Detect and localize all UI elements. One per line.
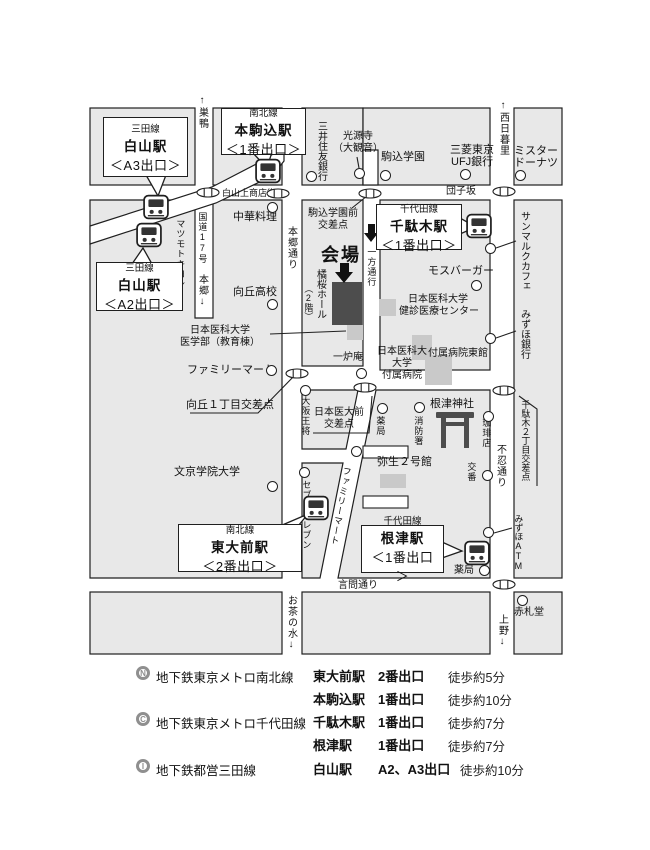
poi-fuzoku-3: 付属病院	[374, 370, 430, 382]
poi-ufj-2: UFJ銀行	[451, 156, 493, 169]
poi-marker	[471, 280, 482, 291]
train-icon-hakusan-a2	[136, 222, 162, 248]
poi-marker	[300, 385, 311, 396]
legend-line-namboku: 地下鉄東京メトロ南北線	[156, 667, 294, 686]
legend-walk-time: 徒歩約10分	[460, 760, 524, 779]
poi-marker	[356, 368, 367, 379]
poi-marker	[460, 169, 471, 180]
legend-station: 白山駅	[313, 759, 352, 778]
poi-marker	[483, 527, 494, 538]
poi-marker	[377, 403, 388, 414]
poi-fuzoku-2: 大学	[374, 358, 430, 370]
poi-marker	[380, 170, 391, 181]
legend-exit: A2、A3出口	[378, 759, 450, 778]
poi-marker	[515, 170, 526, 181]
road-label-dangozaka: 団子坂	[446, 186, 476, 198]
crosswalk-icon	[492, 579, 516, 590]
poi-marker	[351, 446, 362, 457]
station-box-nezu: 千代田線 根津駅 ＜1番出口＞	[361, 525, 444, 573]
legend-exit: 1番出口	[378, 712, 424, 731]
crosswalk-icon	[196, 187, 220, 198]
venue-arrow-stem	[340, 263, 349, 272]
poi-kogenji-2: （大観音）	[330, 143, 386, 155]
poi-mitsui-sumitomo: 三井住友銀行	[315, 121, 327, 181]
legend-line-mita: 地下鉄都営三田線	[156, 760, 256, 779]
venue-building	[332, 282, 362, 325]
legend-walk-time: 徒歩約7分	[448, 713, 505, 732]
station-box-hakusan-a2: 三田線 白山駅 ＜A2出口＞	[96, 262, 183, 311]
crossing-sendagi2: 千駄木２丁目交差点	[520, 400, 530, 481]
road-label-hongodori: 本郷通り	[285, 226, 297, 270]
poi-marker	[485, 333, 496, 344]
road-label-ueno: 上野↓	[496, 614, 508, 648]
poi-marker	[485, 243, 496, 254]
legend-line-chiyoda: 地下鉄東京メトロ千代田線	[156, 713, 306, 732]
poi-chuka: 中華料理	[233, 211, 277, 224]
venue-floor-label: （2階）	[303, 284, 313, 321]
poi-coffee: 珈琲店	[481, 418, 491, 448]
station-box-honkomagome: 南北線 本駒込駅 ＜1番出口＞	[221, 108, 306, 155]
legend-station: 東大前駅	[313, 666, 365, 685]
station-box-hakusan-a3: 三田線 白山駅 ＜A3出口＞	[103, 117, 188, 177]
poi-sanmarku: サンマルクカフェ	[518, 211, 530, 291]
crosswalk-icon	[358, 188, 382, 199]
train-icon-hakusan-a3	[143, 194, 169, 220]
poi-shobosho: 消防署	[413, 416, 423, 446]
poi-igakubu-1: 日本医科大学	[168, 325, 272, 337]
metro-line-symbol-chiyoda: C	[136, 712, 150, 726]
crosswalk-icon	[285, 368, 309, 379]
poi-marker	[354, 168, 365, 179]
poi-marker	[479, 565, 490, 576]
poi-marker	[299, 467, 310, 478]
poi-famima-west: ファミリーマート	[187, 364, 275, 377]
legend-exit: 2番出口	[378, 666, 424, 685]
legend-station: 本駒込駅	[313, 689, 365, 708]
poi-mizuho-atm: みずほATM	[513, 514, 523, 571]
crosswalk-icon	[492, 385, 516, 396]
legend-exit: 1番出口	[378, 735, 424, 754]
road-label-shinobazu: 不忍通り	[494, 444, 506, 488]
station-name: 東大前駅	[182, 536, 298, 556]
road-label-sugamo: ↑巣鴨	[196, 95, 208, 129]
poi-mister-donut-1: ミスター	[514, 145, 558, 158]
train-icon-nezu	[464, 540, 490, 566]
education-building	[347, 325, 363, 340]
legend-walk-time: 徒歩約5分	[448, 667, 505, 686]
metro-line-symbol-mita: I	[136, 759, 150, 773]
kogenji-stub-road	[363, 150, 378, 185]
poi-nezu-jinja: 根津神社	[430, 398, 474, 411]
station-exit: ＜A3出口＞	[107, 155, 184, 174]
train-icon-honkomagome	[255, 158, 281, 184]
crossing-idaimae-1: 日本医大前	[306, 407, 372, 419]
poi-marker	[267, 481, 278, 492]
poi-ufj-1: 三菱東京	[450, 144, 494, 157]
crossing-komagomemae-1: 駒込学園前	[300, 208, 366, 220]
road-label-nishinippori: ↑西日暮里	[497, 100, 509, 156]
train-icon-todaimae	[303, 495, 329, 521]
poi-bunkyo-univ: 文京学院大学	[174, 466, 240, 479]
station-line: 南北線	[182, 522, 298, 536]
station-name: 白山駅	[100, 274, 179, 294]
venue-arrow-icon	[335, 272, 353, 283]
poi-fuzoku-1: 日本医科大	[374, 346, 430, 358]
station-line: 三田線	[100, 260, 179, 274]
station-name: 千駄木駅	[380, 215, 458, 235]
crosswalk-icon	[266, 188, 290, 199]
poi-kogenji-1: 光源寺	[336, 131, 380, 143]
station-name: 根津駅	[365, 527, 440, 547]
poi-marker	[517, 595, 528, 606]
station-exit: ＜A2出口＞	[100, 294, 179, 313]
poi-marker	[414, 402, 425, 413]
station-exit: ＜2番出口＞	[182, 556, 298, 575]
poi-marker	[267, 202, 278, 213]
oneway-arrow-stem	[368, 224, 375, 233]
station-box-sendagi: 千代田線 千駄木駅 ＜1番出口＞	[376, 204, 462, 250]
poi-mister-donut-2: ドーナツ	[514, 157, 558, 170]
road-label-ochanomizu: お茶の水↓	[285, 595, 297, 651]
poi-akafudado: 赤札堂	[514, 607, 544, 619]
legend-station: 千駄木駅	[313, 712, 365, 731]
station-exit: ＜1番出口＞	[380, 235, 458, 254]
metro-line-symbol-namboku: N	[136, 666, 150, 680]
poi-yayoi: 弥生２号館	[377, 456, 432, 469]
station-exit: ＜1番出口＞	[365, 547, 440, 585]
poi-marker	[306, 171, 317, 182]
poi-ichiroan: 一炉庵	[333, 352, 363, 364]
poi-toukan: 付属病院東館	[428, 348, 488, 360]
station-line: 南北線	[225, 105, 302, 119]
poi-yakkyoku-north: 薬局	[375, 416, 385, 436]
road-label-kokudo17: 国道17号	[197, 212, 207, 264]
poi-marker	[482, 470, 493, 481]
poi-marker	[267, 299, 278, 310]
station-exit: ＜1番出口＞	[225, 139, 302, 158]
poi-mos-burger: モスバーガー	[428, 265, 494, 278]
crosswalk-icon	[492, 186, 516, 197]
poi-igakubu-2: 医学部（教育棟）	[168, 337, 272, 349]
access-map-page: 白山上商店街 団子坂 言問通り ↑巣鴨 国道17号 本郷↓ ↑西日暮里 本郷通り…	[0, 0, 650, 850]
poi-komagome-gakuen: 駒込学園	[381, 151, 425, 164]
crossing-mukogaoka1: 向丘１丁目交差点	[186, 399, 274, 412]
train-icon-sendagi	[466, 213, 492, 239]
poi-yakkyoku-south: 薬局	[454, 565, 474, 577]
crossing-idaimae-2: 交差点	[306, 419, 372, 431]
legend-walk-time: 徒歩約7分	[448, 736, 505, 755]
legend-walk-time: 徒歩約10分	[448, 690, 512, 709]
road-label-oneway: 一方通行	[366, 247, 376, 287]
legend-exit: 1番出口	[378, 689, 424, 708]
station-box-todaimae: 南北線 東大前駅 ＜2番出口＞	[178, 524, 302, 572]
crosswalk-icon	[353, 382, 377, 393]
crossing-komagomemae-2: 交差点	[300, 220, 366, 232]
station-name: 本駒込駅	[225, 119, 302, 139]
poi-marker	[266, 365, 277, 376]
road-label-hongo: 本郷↓	[196, 274, 208, 308]
poi-mizuho-bank: みずほ銀行	[518, 309, 530, 359]
station-name: 白山駅	[107, 135, 184, 155]
poi-kenshin-1: 日本医科大学	[396, 294, 480, 306]
poi-kenshin-2: 健診医療センター	[392, 306, 486, 318]
poi-marker	[483, 411, 494, 422]
venue-hall-label: 橘桜ホール	[314, 269, 326, 319]
poi-koban: 交番	[466, 462, 476, 482]
station-line: 三田線	[107, 121, 184, 135]
station-line: 千代田線	[365, 513, 440, 527]
poi-mukogaoka-hs: 向丘高校	[233, 286, 277, 299]
station-line: 千代田線	[380, 201, 458, 215]
legend-station: 根津駅	[313, 735, 352, 754]
